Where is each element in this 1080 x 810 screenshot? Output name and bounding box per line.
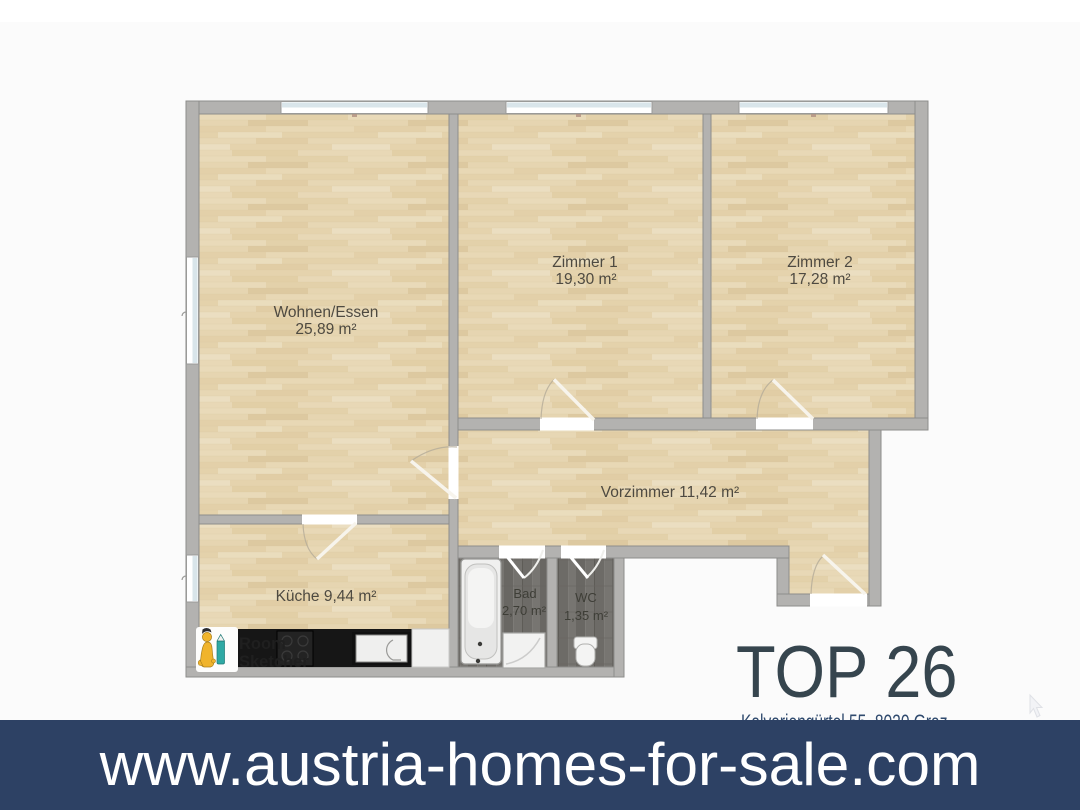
svg-text:2,70 m²: 2,70 m² <box>502 603 547 618</box>
svg-text:Zimmer 1: Zimmer 1 <box>552 254 617 271</box>
svg-text:25,89 m²: 25,89 m² <box>295 321 356 338</box>
svg-text:17,28 m²: 17,28 m² <box>789 271 850 288</box>
svg-text:WC: WC <box>575 590 597 605</box>
svg-text:19,30 m²: 19,30 m² <box>555 271 616 288</box>
svg-text:Küche 9,44 m²: Küche 9,44 m² <box>276 588 377 605</box>
svg-text:1,35 m²: 1,35 m² <box>564 608 609 623</box>
svg-text:Sketcher: Sketcher <box>239 653 309 671</box>
svg-text:Wohnen/Essen: Wohnen/Essen <box>274 304 379 321</box>
svg-text:Zimmer 2: Zimmer 2 <box>787 254 852 271</box>
svg-text:Bad: Bad <box>513 586 536 601</box>
svg-text:Room: Room <box>239 635 286 653</box>
svg-text:Vorzimmer 11,42 m²: Vorzimmer 11,42 m² <box>601 484 739 501</box>
